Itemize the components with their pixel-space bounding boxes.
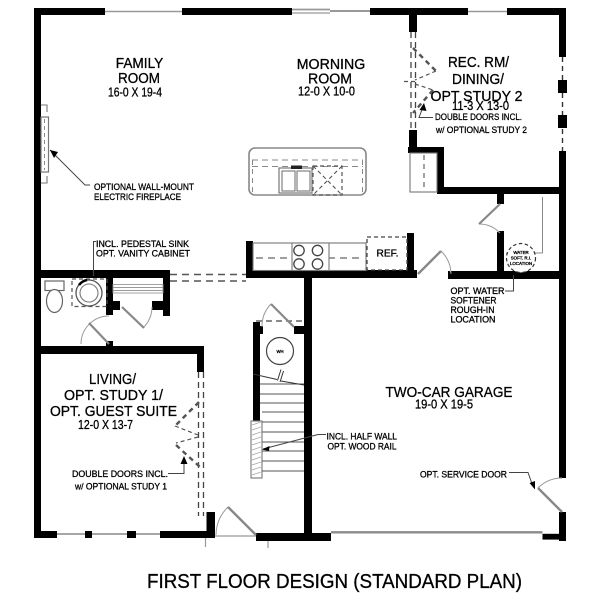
svg-text:LIVING/: LIVING/ — [89, 371, 137, 388]
svg-text:REC. RM/: REC. RM/ — [448, 54, 510, 71]
svg-text:11-3 X 13-0: 11-3 X 13-0 — [452, 99, 509, 113]
svg-text:12-0 X 13-7: 12-0 X 13-7 — [78, 418, 133, 432]
svg-text:SOFT. R.I.: SOFT. R.I. — [511, 256, 532, 261]
svg-text:OPT. STUDY 1/: OPT. STUDY 1/ — [64, 387, 164, 404]
svg-text:OPT. VANITY CABINET: OPT. VANITY CABINET — [96, 249, 190, 260]
svg-text:16-0 X 19-4: 16-0 X 19-4 — [108, 86, 162, 100]
svg-text:19-0 X 19-5: 19-0 X 19-5 — [415, 398, 473, 412]
svg-text:ELECTRIC FIREPLACE: ELECTRIC FIREPLACE — [94, 192, 181, 203]
svg-text:FIRST FLOOR DESIGN (STANDARD P: FIRST FLOOR DESIGN (STANDARD PLAN) — [147, 571, 522, 593]
svg-text:OPT. WOOD RAIL: OPT. WOOD RAIL — [328, 442, 397, 453]
svg-text:12-0 X 10-0: 12-0 X 10-0 — [298, 85, 355, 99]
svg-text:LOCATION: LOCATION — [510, 261, 532, 266]
svg-text:LOCATION: LOCATION — [451, 315, 496, 325]
svg-text:w/ OPTIONAL STUDY 2: w/ OPTIONAL STUDY 2 — [435, 125, 527, 136]
svg-text:DOUBLE DOORS INCL.: DOUBLE DOORS INCL. — [435, 112, 522, 123]
svg-text:WH: WH — [277, 349, 284, 354]
svg-text:SOFTENER: SOFTENER — [451, 296, 497, 306]
svg-text:w/ OPTIONAL STUDY 1: w/ OPTIONAL STUDY 1 — [74, 482, 167, 493]
svg-text:REF.: REF. — [377, 249, 399, 260]
svg-text:ROOM: ROOM — [118, 70, 160, 87]
svg-text:DINING/: DINING/ — [452, 71, 505, 88]
svg-text:OPT. WATER: OPT. WATER — [451, 286, 506, 296]
svg-text:WATER: WATER — [513, 250, 528, 255]
svg-text:DOUBLE DOORS INCL.: DOUBLE DOORS INCL. — [72, 469, 168, 480]
svg-text:ROUGH-IN: ROUGH-IN — [451, 305, 495, 315]
svg-text:OPT. SERVICE DOOR: OPT. SERVICE DOOR — [420, 470, 507, 481]
